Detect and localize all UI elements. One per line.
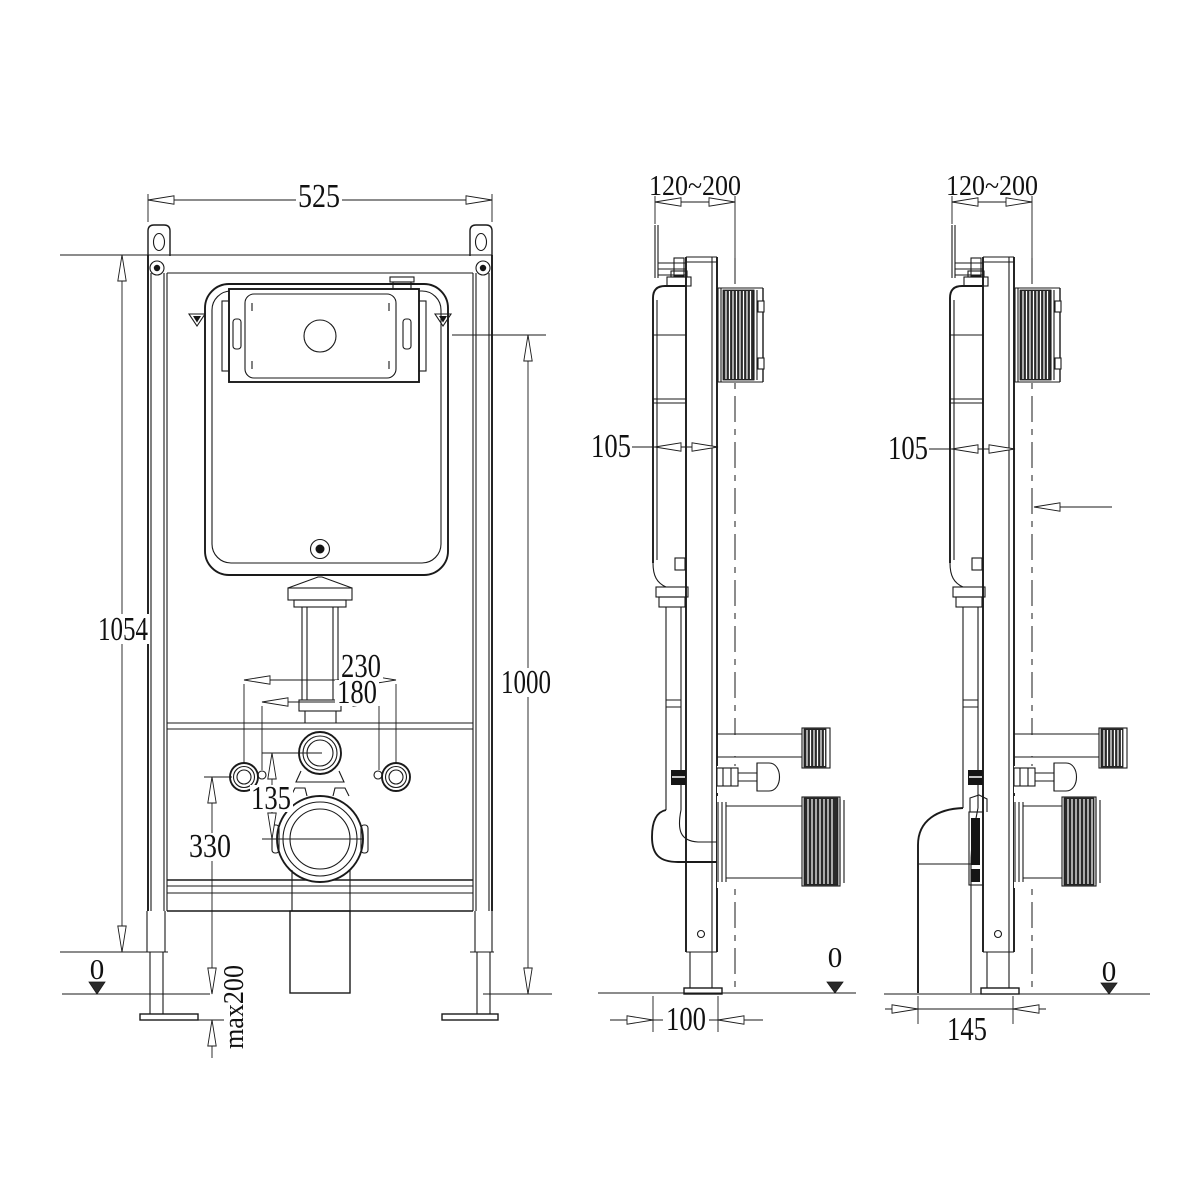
floor-datum-a: 0 [828,942,843,974]
flush-plate-access-box [222,277,426,382]
dim-frame-depth-a: 105 [591,428,631,465]
flush-connector-b [1014,728,1127,768]
dim-frame-depth-b: 105 [888,430,928,467]
soil-connector-a [717,796,845,888]
dim-supply-outlet-offset: 135 [251,780,291,817]
frame-column-a [686,257,717,952]
floor-datum-marker-b [1101,983,1117,994]
fixing-bolt-a [717,763,791,793]
mounting-tab-left [148,225,170,256]
rail-screw-right [476,261,490,275]
floor-datum-marker-a [827,982,843,993]
cistern-screw [311,540,330,559]
wc-frame-installation-drawing: 525 1054 1000 230 180 135 330 0 max200 [0,0,1200,1200]
technical-drawing-page: 525 1054 1000 230 180 135 330 0 max200 [0,0,1200,1200]
dim-floor-depth-b: 145 [947,1011,987,1048]
side-view-b: 120~200 105 145 0 [884,170,1150,1048]
wall-bracket-b [952,225,983,278]
foot-plate-right [442,1014,498,1020]
dim-outlet-height: 330 [189,828,231,865]
fixing-bolt-b [1014,763,1088,793]
dim-frame-width: 525 [298,178,340,215]
mounting-tab-right [470,225,492,256]
frame-column-b [983,257,1014,952]
filling-valve-nipple [390,277,414,289]
dim-wall-depth-range-a: 120~200 [649,170,741,202]
foot-plate-left [140,1014,198,1020]
pipe-clamp-b [968,770,983,785]
wall-bracket-a [655,225,686,278]
dim-foot-adjustment: max200 [218,965,250,1049]
level-mark-left [189,314,205,326]
frame-legs [140,911,498,1020]
dim-floor-depth-a: 100 [666,1001,706,1038]
flush-connector-a [717,728,830,768]
dim-frame-height: 1054 [98,611,148,648]
water-supply-fitting [296,732,344,782]
dim-wall-depth-range-b: 120~200 [946,170,1038,202]
side-view-a: 120~200 105 100 0 [591,170,856,1038]
front-view: 525 1054 1000 230 180 135 330 0 max200 [60,178,553,1058]
waste-duct-box [290,911,350,993]
dim-fixing-spacing-inner: 180 [337,674,377,711]
floor-datum-front: 0 [90,954,105,986]
access-sleeve-b [1015,288,1061,382]
outlet-elbow-a [652,810,717,862]
access-sleeve-a [718,288,764,382]
wall-surface-arrow [1034,503,1112,511]
rail-screw-left [150,261,164,275]
dim-flush-plate-height: 1000 [501,664,551,701]
pipe-clamp-a [671,770,686,785]
soil-connector-b [1014,796,1106,888]
